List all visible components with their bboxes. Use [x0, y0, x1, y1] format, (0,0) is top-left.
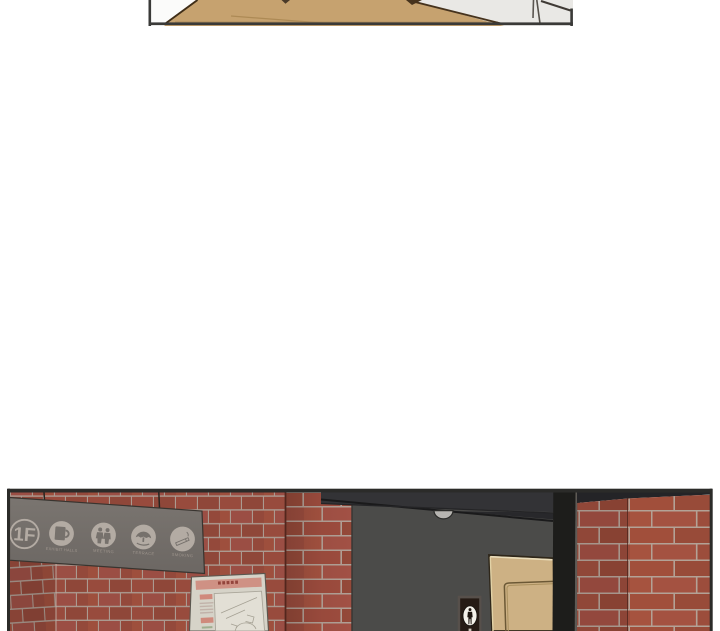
svg-text:1F: 1F — [13, 524, 37, 546]
